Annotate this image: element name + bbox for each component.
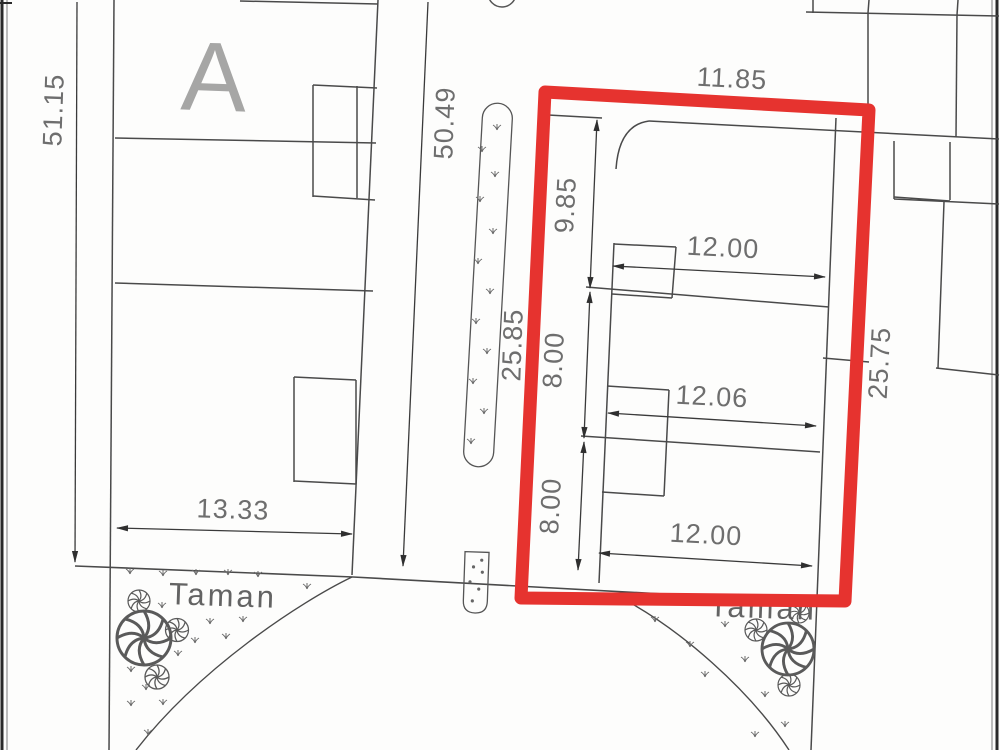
- highlight-rectangle: [521, 92, 869, 601]
- road-median-island: [463, 102, 513, 467]
- tree-symbols: [117, 590, 814, 696]
- dim-lot-bottom-width: 12.00: [669, 518, 743, 553]
- dim-lot-top-width: 12.00: [686, 231, 760, 266]
- site-plan-drawing: Taman: [0, 0, 1000, 750]
- sheet-border-left: [0, 0, 12, 750]
- label-layer: 51.15 A 50.49 25.85 11.85 9.85 8.00 8.00…: [0, 0, 1000, 750]
- dim-highlight-right-length: 25.75: [863, 326, 898, 400]
- south-boundary-line: [75, 566, 845, 604]
- park-label-left: Taman: [168, 576, 277, 616]
- park-label-right: Taman: [708, 588, 817, 628]
- dim-lot-bottom-depth: 8.00: [534, 477, 568, 535]
- dim-highlight-frontage-left: 25.85: [496, 308, 530, 382]
- dim-block-a-south-width: 13.33: [196, 493, 270, 527]
- roundabout-circle: [488, 0, 516, 7]
- lot-linework: [548, 115, 999, 750]
- dim-lot-mid-width: 12.06: [675, 380, 749, 415]
- dimension-lines: [75, 2, 825, 570]
- park-boundaries: [136, 577, 789, 750]
- plan-linework: [0, 0, 1000, 750]
- dim-west-boundary: 51.15: [37, 73, 71, 147]
- block-a-label: A: [179, 19, 248, 134]
- dim-road-length: 50.49: [428, 86, 462, 160]
- dim-lot-top-depth: 9.85: [549, 176, 583, 234]
- sheet-border-right: [992, 0, 997, 750]
- dim-highlight-top-width: 11.85: [696, 62, 768, 97]
- dim-lot-mid-depth: 8.00: [537, 331, 571, 389]
- under-label-layer: Taman: [0, 0, 1000, 750]
- block-a-linework: [109, 0, 378, 750]
- grass-marks: [126, 568, 789, 737]
- northeast-block-linework: [806, 0, 999, 375]
- road-end-island: [463, 552, 489, 614]
